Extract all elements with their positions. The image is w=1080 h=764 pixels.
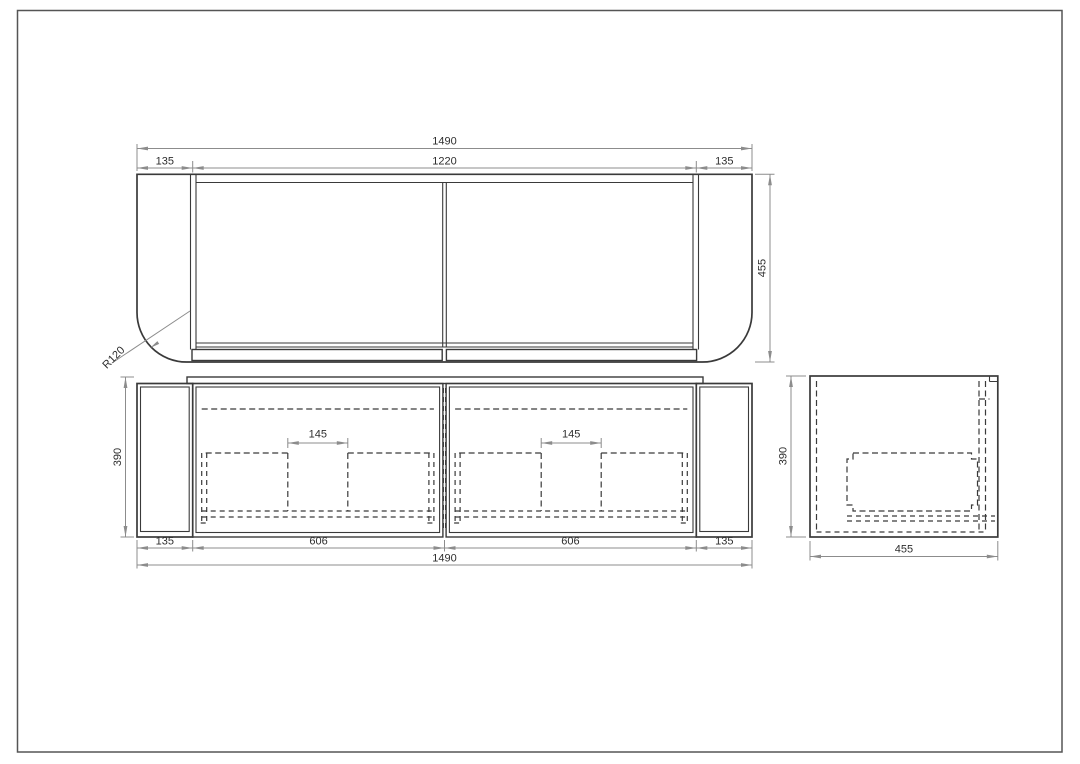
dim-label-right-side-bottom: 135 — [715, 535, 733, 547]
front-height-dimension: 390 — [112, 377, 134, 537]
side-depth-dimension: 455 — [810, 541, 998, 561]
dim-label-left-side-bottom: 135 — [156, 535, 174, 547]
dim-label-right-door-width: 606 — [561, 535, 579, 547]
front-right-side-panel — [696, 384, 752, 538]
front-top-panel-edge — [187, 377, 703, 384]
dim-label-right-side-top: 135 — [715, 155, 733, 167]
dim-label-total-width-bottom: 1490 — [432, 552, 456, 564]
dim-label-left-side-top: 135 — [156, 155, 174, 167]
side-view: 390 455 — [777, 376, 998, 561]
technical-drawing-canvas: R120 1490 135 1220 135 455 — [0, 0, 1080, 764]
side-height-dimension: 390 — [777, 376, 806, 537]
top-view-door-edges — [192, 350, 697, 361]
dim-label-right-cutout: 145 — [562, 429, 580, 441]
dim-label-left-cutout: 145 — [309, 429, 327, 441]
top-view-inner-lines — [191, 174, 699, 349]
front-bottom-dimensions: 135 606 606 135 1490 — [137, 535, 752, 568]
side-view-outline — [810, 376, 998, 537]
dim-label-left-door-width: 606 — [309, 535, 327, 547]
dim-label-side-height: 390 — [777, 447, 789, 465]
corner-radius-leader: R120 — [100, 311, 190, 371]
dim-label-total-width-top: 1490 — [432, 136, 456, 148]
front-right-door-hidden-lines — [454, 409, 688, 523]
dim-label-inner-width: 1220 — [432, 155, 456, 167]
front-left-door-hidden-lines — [201, 409, 435, 523]
top-view-outline — [137, 174, 752, 362]
front-view: 145 145 390 135 606 606 135 1490 — [112, 377, 752, 569]
dim-label-depth-top: 455 — [757, 259, 769, 277]
front-right-door — [446, 384, 696, 538]
drawing-sheet: R120 1490 135 1220 135 455 — [0, 0, 1080, 764]
dim-label-side-depth: 455 — [895, 543, 913, 555]
dim-label-corner-radius: R120 — [100, 344, 127, 371]
side-view-hidden-lines — [817, 381, 996, 533]
dim-label-front-height: 390 — [112, 448, 124, 466]
front-right-cutout-dimension: 145 — [541, 429, 601, 449]
top-view-dimensions: 1490 135 1220 135 455 — [137, 136, 775, 363]
front-left-door — [193, 384, 443, 538]
front-left-cutout-dimension: 145 — [288, 429, 348, 449]
front-left-side-panel — [137, 384, 193, 538]
front-center-divider-hidden — [443, 388, 445, 532]
top-view: R120 1490 135 1220 135 455 — [100, 136, 774, 372]
sheet-border — [18, 11, 1063, 753]
